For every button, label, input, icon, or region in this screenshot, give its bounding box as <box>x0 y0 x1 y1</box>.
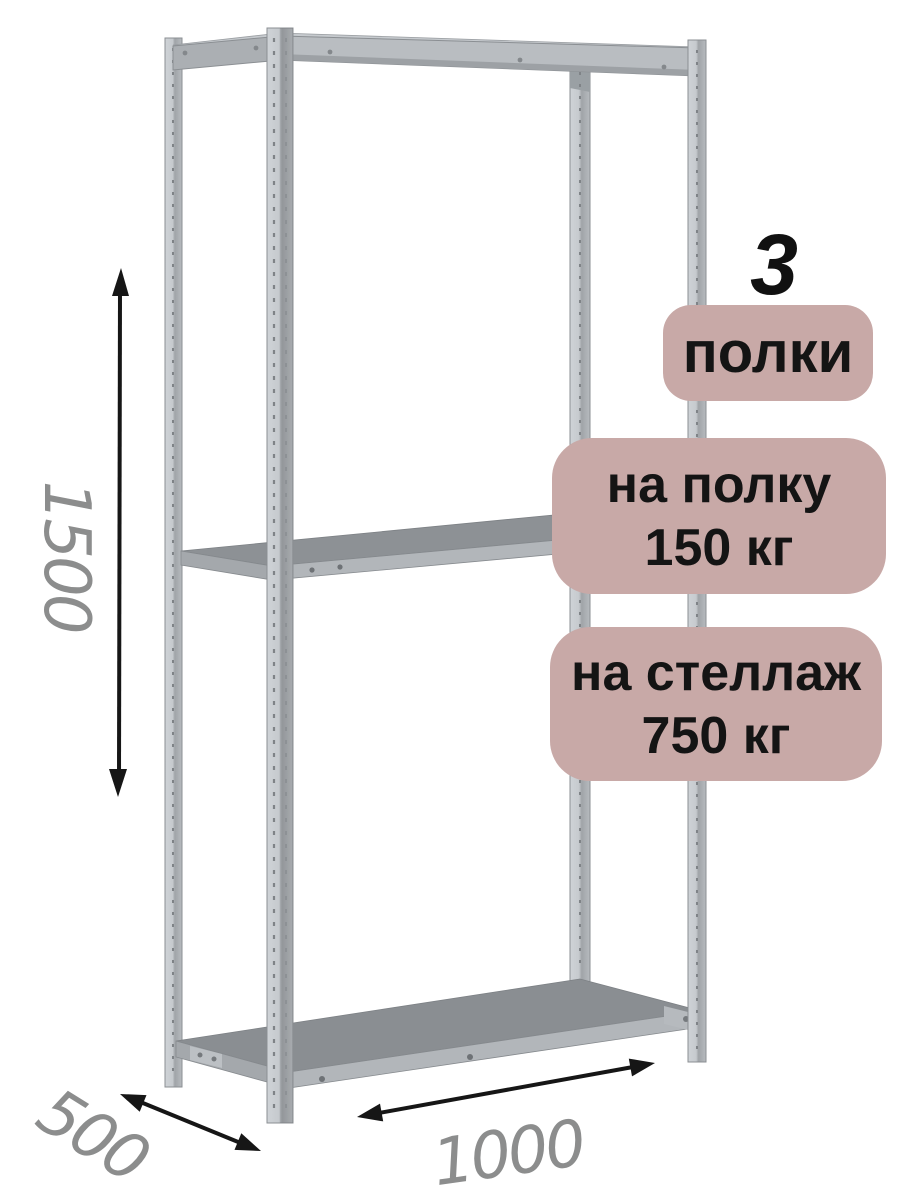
shelf-load-line2: 150 кг <box>645 522 794 574</box>
shelves-count: 3 <box>726 222 822 308</box>
shelf-load-line1: на полку <box>607 459 832 511</box>
rack-load-line1: на стеллаж <box>571 647 861 699</box>
shelves-badge: полки <box>663 305 873 401</box>
rack-top-shelf <box>173 33 698 76</box>
rack-load-badge: на стеллаж 750 кг <box>550 627 882 781</box>
rack-bottom-shelf <box>176 979 701 1088</box>
height-arrow <box>109 268 129 797</box>
rack-post-front-left <box>267 28 293 1123</box>
rack-illustration <box>0 0 900 1200</box>
height-dimension-label: 1500 <box>34 448 98 664</box>
shelf-load-badge: на полку 150 кг <box>552 438 886 594</box>
rack-load-line2: 750 кг <box>642 710 791 762</box>
rack-post-back-left <box>165 38 182 1087</box>
product-image: 1500 500 1000 3 полки на полку 150 кг на… <box>0 0 900 1200</box>
